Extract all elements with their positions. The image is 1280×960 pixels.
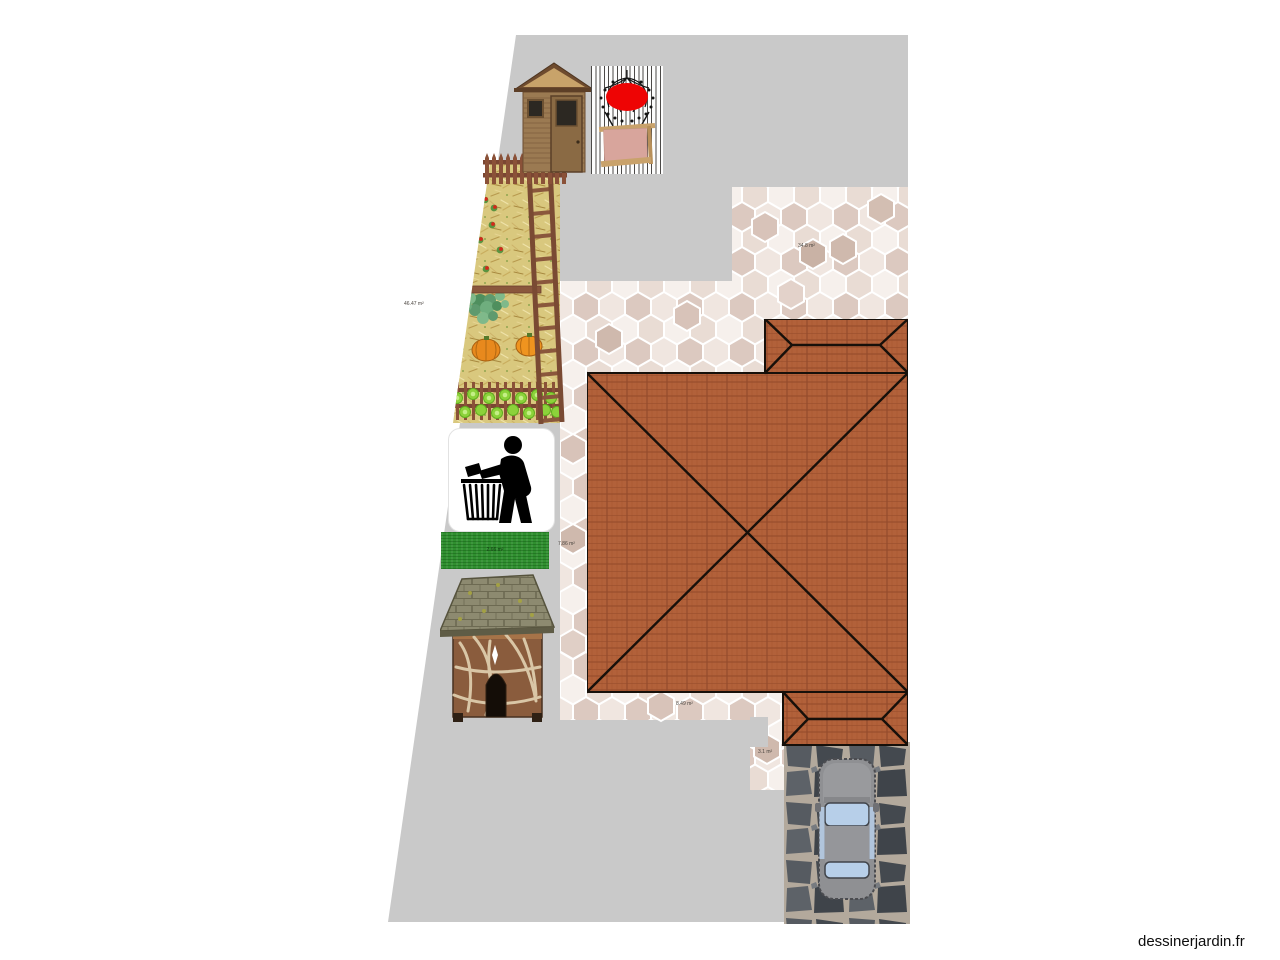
driveway[interactable] <box>784 742 910 924</box>
garden-area-label: 46.47 m² <box>404 302 424 307</box>
patio-tab-area-label: 3.1 m² <box>758 750 772 755</box>
car-rear-window <box>825 862 869 878</box>
stone-hut[interactable] <box>440 571 555 723</box>
litter-sign[interactable] <box>448 428 555 532</box>
lawn-area-label: 2.66 m² <box>487 548 504 553</box>
car-windshield <box>825 803 869 826</box>
vegetable-garden[interactable] <box>445 148 565 430</box>
trellis-crossbar <box>455 286 541 293</box>
patio-bottom-area-label: 8.49 m² <box>676 702 693 707</box>
red-oval <box>606 83 648 111</box>
house-roof[interactable] <box>587 319 908 746</box>
garden-plan-canvas: 2.66 m² <box>0 0 1280 960</box>
car[interactable] <box>815 759 879 899</box>
shed-door-window <box>556 100 577 126</box>
pink-gate-leaf <box>603 128 647 161</box>
garden-shed[interactable] <box>514 60 594 174</box>
patio-left-area-label: 7.86 m² <box>558 542 575 547</box>
litter-pictogram-icon <box>449 429 554 531</box>
gate-panel[interactable] <box>591 66 663 174</box>
shed-window <box>528 100 543 117</box>
lawn-patch[interactable]: 2.66 m² <box>441 532 549 569</box>
hut-door <box>486 674 506 717</box>
site-watermark: dessinerjardin.fr <box>1138 933 1245 950</box>
patio-top-area-label: 34.8 m² <box>798 244 815 249</box>
